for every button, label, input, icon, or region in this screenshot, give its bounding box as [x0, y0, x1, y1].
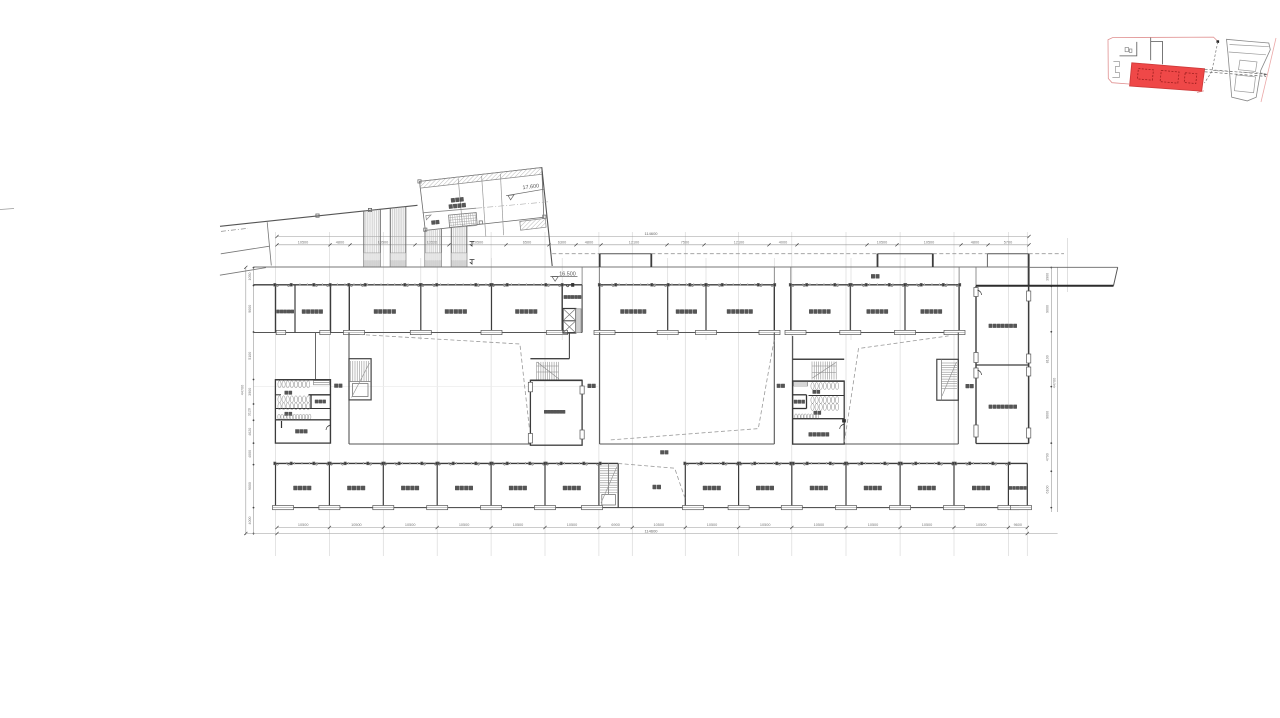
svg-text:44700: 44700	[241, 385, 245, 396]
svg-text:9000: 9000	[248, 305, 252, 313]
svg-text:4800: 4800	[971, 240, 979, 244]
svg-text:10500: 10500	[814, 523, 825, 527]
svg-text:10500: 10500	[760, 523, 771, 527]
svg-text:10500: 10500	[976, 523, 987, 527]
svg-text:44700: 44700	[1052, 378, 1056, 389]
svg-text:4620: 4620	[248, 428, 252, 436]
svg-text:3900: 3900	[248, 388, 252, 396]
svg-text:10500: 10500	[654, 523, 665, 527]
svg-text:114600: 114600	[644, 528, 658, 533]
svg-text:3900: 3900	[1046, 273, 1050, 281]
svg-text:114600: 114600	[644, 231, 658, 236]
svg-text:10500: 10500	[459, 523, 470, 527]
svg-text:10500: 10500	[924, 240, 935, 244]
svg-text:7500: 7500	[681, 240, 689, 244]
svg-text:10500: 10500	[427, 240, 438, 244]
svg-text:12100: 12100	[629, 240, 640, 244]
svg-text:10500: 10500	[513, 523, 524, 527]
svg-text:4700: 4700	[1046, 453, 1050, 461]
svg-text:4800: 4800	[585, 240, 593, 244]
svg-text:9600: 9600	[1014, 523, 1022, 527]
svg-text:9000: 9000	[1046, 305, 1050, 313]
svg-text:10500: 10500	[298, 523, 309, 527]
svg-text:6900: 6900	[611, 523, 619, 527]
svg-text:5100: 5100	[248, 352, 252, 360]
svg-text:4800: 4800	[336, 240, 344, 244]
svg-text:16.500: 16.500	[559, 271, 576, 277]
svg-text:6100: 6100	[1046, 485, 1050, 493]
svg-text:12100: 12100	[734, 240, 745, 244]
svg-text:10500: 10500	[877, 240, 888, 244]
svg-text:1050: 1050	[248, 273, 252, 281]
svg-text:10500: 10500	[473, 240, 484, 244]
svg-text:10500: 10500	[922, 523, 933, 527]
svg-text:6500: 6500	[523, 240, 531, 244]
svg-text:10500: 10500	[405, 523, 416, 527]
svg-text:6300: 6300	[558, 240, 566, 244]
svg-text:3120: 3120	[248, 408, 252, 416]
svg-text:8100: 8100	[1046, 355, 1050, 363]
svg-text:10500: 10500	[298, 240, 309, 244]
svg-text:9600: 9600	[1046, 411, 1050, 419]
svg-text:4000: 4000	[248, 517, 252, 525]
svg-text:9000: 9000	[248, 482, 252, 490]
svg-text:10500: 10500	[378, 240, 389, 244]
svg-text:10500: 10500	[351, 523, 362, 527]
svg-text:4000: 4000	[248, 450, 252, 458]
svg-text:10500: 10500	[567, 523, 578, 527]
svg-text:5700: 5700	[1004, 240, 1012, 244]
svg-text:10500: 10500	[868, 523, 879, 527]
svg-text:4000: 4000	[779, 240, 787, 244]
svg-text:10500: 10500	[707, 523, 718, 527]
